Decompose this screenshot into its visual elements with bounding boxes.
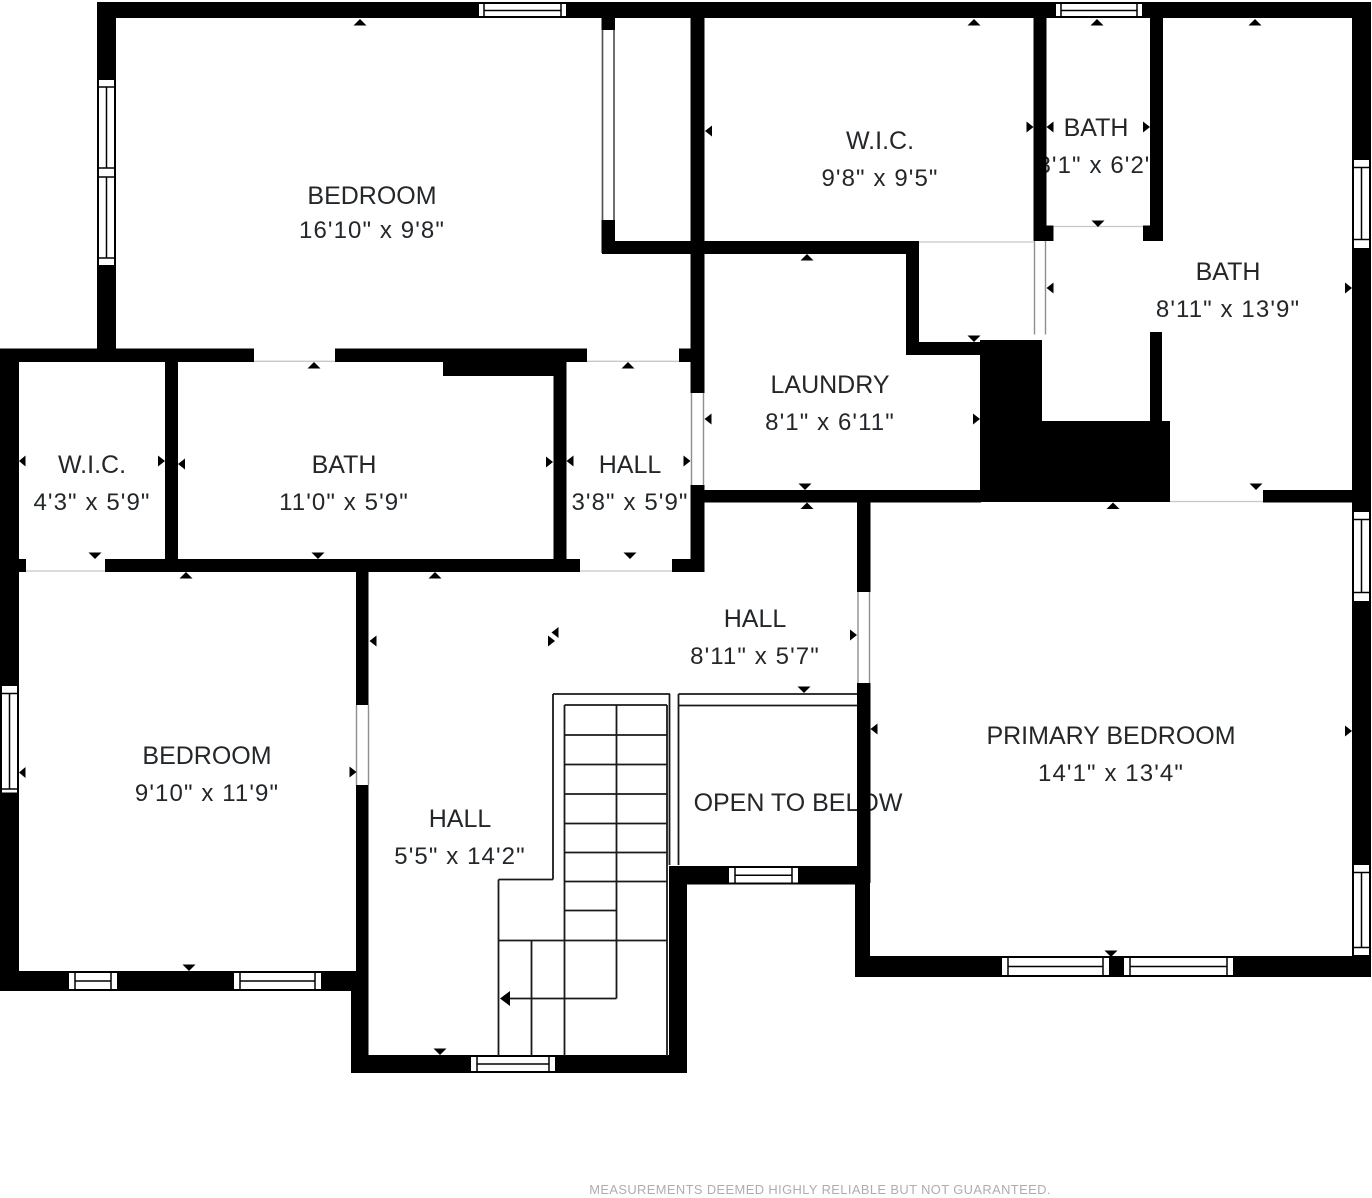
svg-text:8'1" x 6'11": 8'1" x 6'11" xyxy=(765,409,895,436)
svg-text:4'3" x 5'9": 4'3" x 5'9" xyxy=(33,489,150,516)
svg-text:8'11" x 5'7": 8'11" x 5'7" xyxy=(690,643,820,670)
svg-text:W.I.C.: W.I.C. xyxy=(58,451,126,479)
svg-text:LAUNDRY: LAUNDRY xyxy=(770,371,889,399)
svg-text:8'1" x 6'2": 8'1" x 6'2" xyxy=(1037,152,1154,179)
svg-text:3'8" x 5'9": 3'8" x 5'9" xyxy=(571,489,688,516)
svg-text:OPEN TO BELOW: OPEN TO BELOW xyxy=(694,789,903,817)
svg-text:5'5" x 14'2": 5'5" x 14'2" xyxy=(394,843,525,870)
svg-text:HALL: HALL xyxy=(429,805,492,833)
svg-text:BEDROOM: BEDROOM xyxy=(142,742,271,770)
svg-text:8'11" x 13'9": 8'11" x 13'9" xyxy=(1156,296,1300,323)
svg-text:HALL: HALL xyxy=(599,451,662,479)
svg-text:9'10" x 11'9": 9'10" x 11'9" xyxy=(135,780,279,807)
svg-text:BEDROOM: BEDROOM xyxy=(307,182,436,210)
svg-text:HALL: HALL xyxy=(724,605,787,633)
svg-text:14'1" x 13'4": 14'1" x 13'4" xyxy=(1038,760,1184,787)
svg-text:BATH: BATH xyxy=(1064,114,1129,142)
svg-text:11'0" x 5'9": 11'0" x 5'9" xyxy=(279,489,409,516)
svg-text:W.I.C.: W.I.C. xyxy=(846,127,914,155)
svg-text:16'10" x 9'8": 16'10" x 9'8" xyxy=(299,217,445,244)
svg-text:BATH: BATH xyxy=(312,451,377,479)
svg-text:PRIMARY BEDROOM: PRIMARY BEDROOM xyxy=(986,722,1235,750)
svg-text:9'8" x 9'5": 9'8" x 9'5" xyxy=(821,165,938,192)
svg-text:MEASUREMENTS DEEMED HIGHLY REL: MEASUREMENTS DEEMED HIGHLY RELIABLE BUT … xyxy=(589,1182,1051,1197)
svg-text:BATH: BATH xyxy=(1196,258,1261,286)
